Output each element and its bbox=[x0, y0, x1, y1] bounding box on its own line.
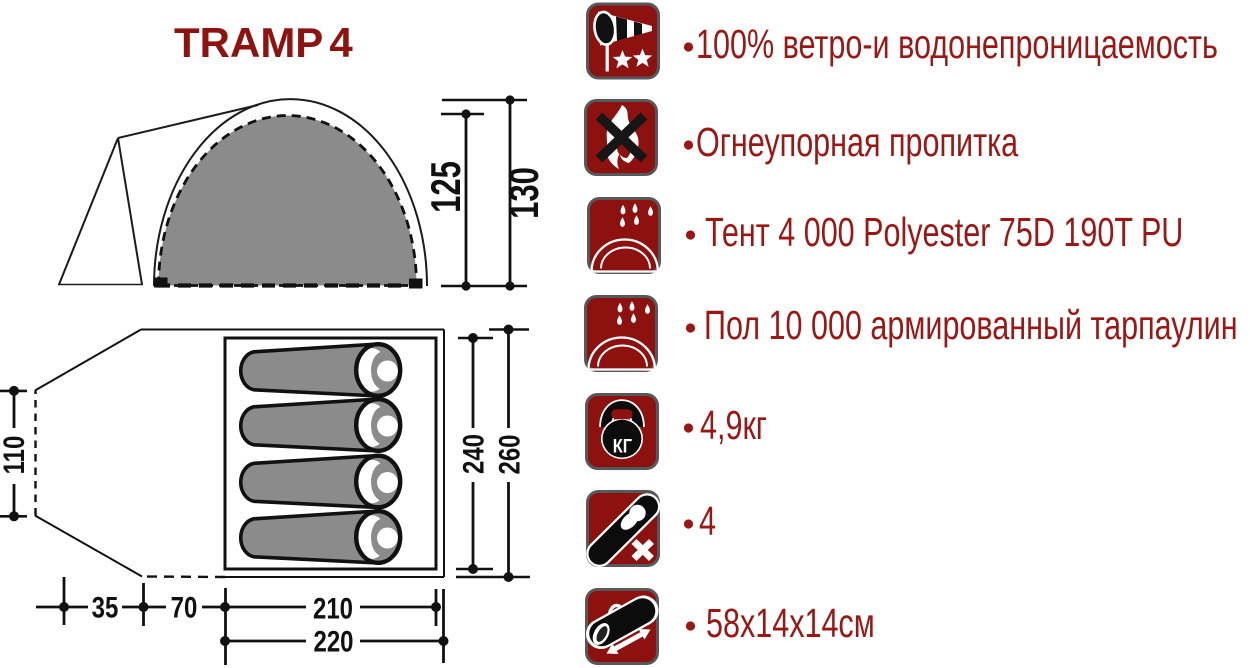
svg-text:240: 240 bbox=[456, 434, 490, 474]
svg-text:110: 110 bbox=[0, 436, 31, 475]
svg-text:130: 130 bbox=[500, 167, 547, 219]
svg-text:Огнеупорная пропитка: Огнеупорная пропитка bbox=[696, 119, 1019, 165]
svg-text:Пол 10 000 армированный тарпау: Пол 10 000 армированный тарпаулин bbox=[704, 302, 1238, 348]
svg-text:4: 4 bbox=[699, 498, 716, 544]
svg-text:220: 220 bbox=[313, 624, 353, 658]
svg-text:4,9кг: 4,9кг bbox=[700, 402, 767, 448]
svg-text:58х14х14см: 58х14х14см bbox=[706, 600, 875, 646]
svg-text:35: 35 bbox=[92, 590, 119, 624]
svg-text:260: 260 bbox=[492, 434, 526, 474]
svg-text:Тент 4 000 Polyester 75D 190T: Тент 4 000 Polyester 75D 190T PU bbox=[705, 209, 1183, 255]
svg-text:210: 210 bbox=[313, 591, 353, 625]
svg-text:125: 125 bbox=[422, 161, 469, 213]
svg-text:КГ: КГ bbox=[613, 435, 632, 457]
svg-text:100% ветро-и водонепроницаемос: 100% ветро-и водонепроницаемость bbox=[696, 21, 1218, 67]
svg-text:70: 70 bbox=[171, 590, 198, 624]
